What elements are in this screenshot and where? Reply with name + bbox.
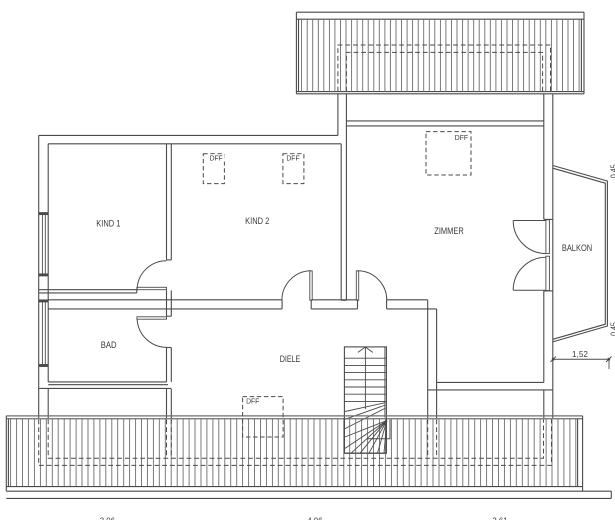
svg-text:BAD: BAD [101,339,117,350]
svg-text:KIND 1: KIND 1 [96,217,120,228]
svg-text:DFF: DFF [246,396,260,405]
svg-text:ZIMMER: ZIMMER [434,225,463,236]
svg-text:BALKON: BALKON [562,242,592,253]
svg-text:3,06: 3,06 [100,516,116,520]
svg-text:DFF: DFF [455,133,469,142]
svg-text:DFF: DFF [210,153,224,162]
svg-text:4,96: 4,96 [307,516,323,520]
svg-text:1,52: 1,52 [572,349,588,359]
svg-text:3,61: 3,61 [492,516,508,520]
svg-text:0,45: 0,45 [609,164,615,178]
svg-text:0,45: 0,45 [609,322,615,336]
svg-text:KIND 2: KIND 2 [245,215,269,226]
svg-text:DFF: DFF [286,153,300,162]
svg-text:DIELE: DIELE [280,353,301,364]
